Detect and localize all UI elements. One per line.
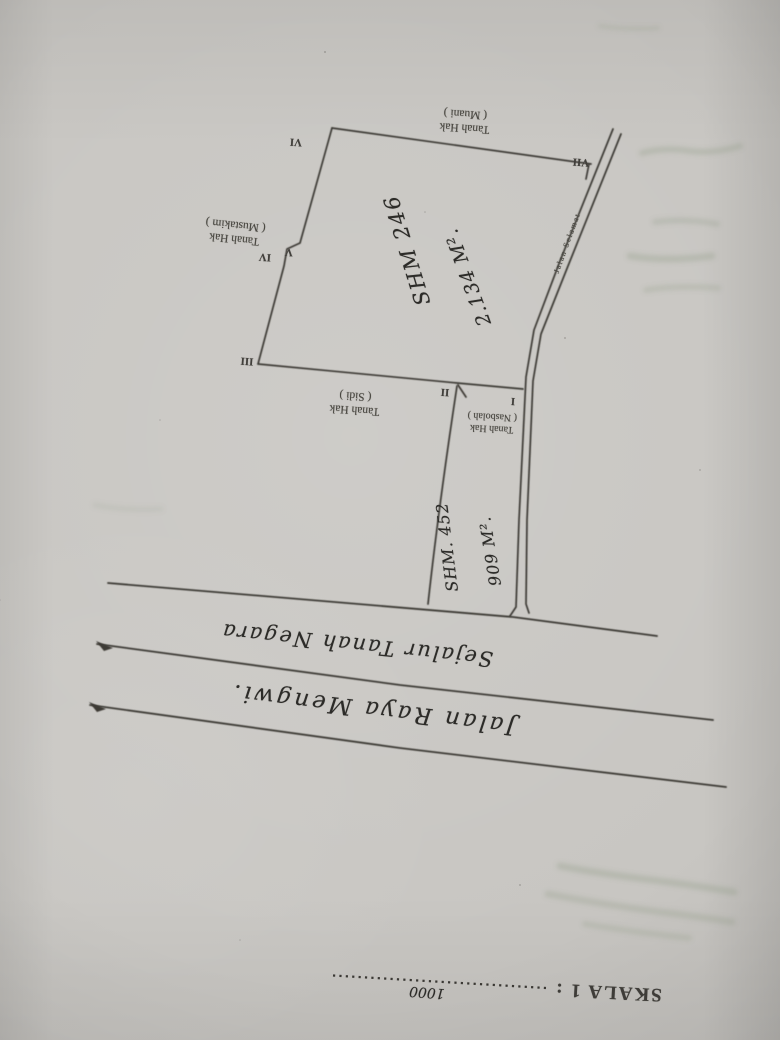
neighbor-label-muani: Tanah Hak ( Muani )	[439, 104, 491, 135]
corner-label-iv: IV	[258, 251, 271, 264]
neighbor-label-sidi: Tanah Hak ( Sidi )	[329, 386, 381, 417]
neighbor-label-nasbolah: Tanah Hak ( Nasbolah )	[467, 409, 518, 436]
road-lines	[90, 583, 726, 787]
bleed-through-marks	[95, 26, 740, 938]
photographed-survey-document: Tanah Hak ( Muani ) Tanah Hak ( Mustakim…	[0, 0, 780, 1040]
corner-label-v: V	[285, 246, 294, 259]
paper-specks	[0, 51, 701, 941]
land-sketch-drawing	[0, 0, 780, 1040]
corner-label-vi: VI	[289, 136, 302, 149]
scale-value: 1000	[409, 983, 446, 1001]
corner-label-iii: III	[240, 355, 254, 368]
corner-label-ii: II	[440, 386, 449, 399]
corner-label-i: I	[510, 395, 515, 407]
corner-label-vii: VII	[572, 155, 589, 168]
side-road-lines	[510, 129, 621, 616]
parcel-246-boundary	[258, 128, 591, 397]
neighbor-label-line2: ( Nasbolah )	[467, 409, 517, 424]
road-line-arrowheads	[89, 641, 113, 712]
